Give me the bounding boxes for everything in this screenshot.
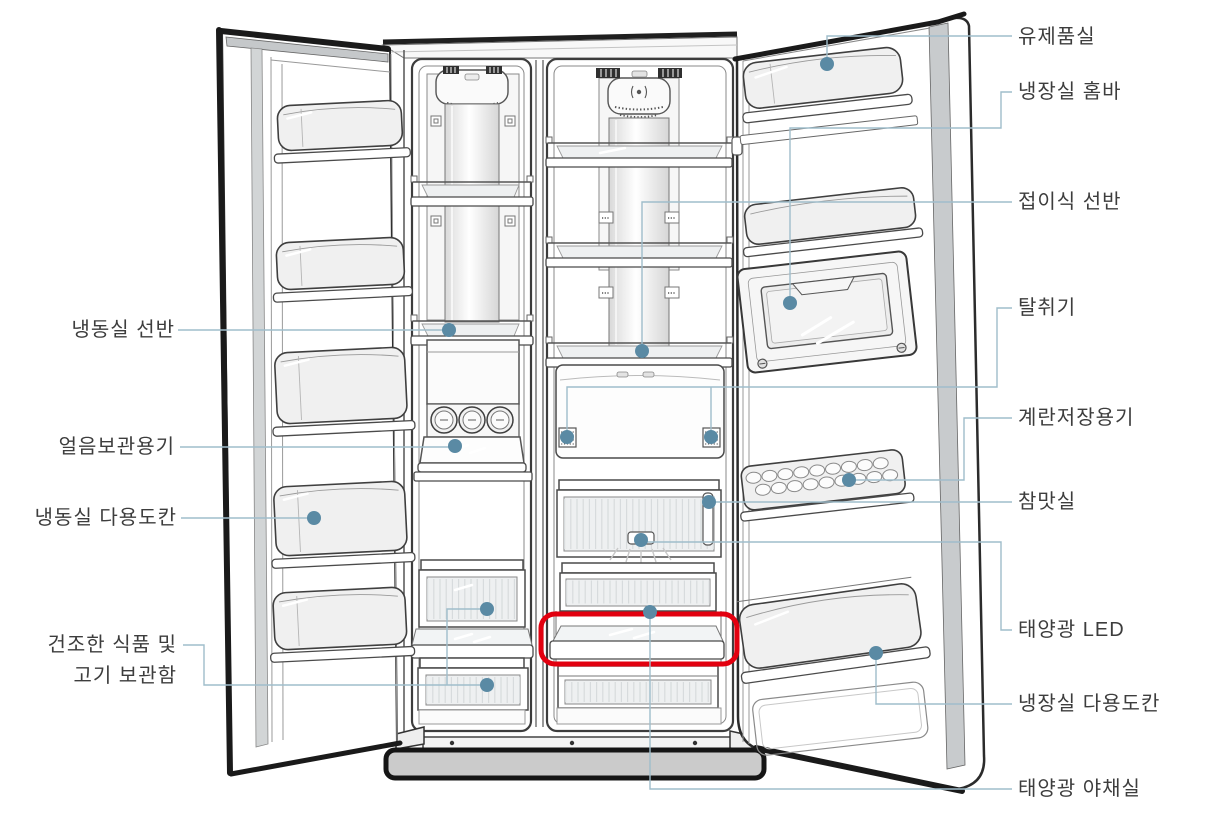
label-fridge-home-bar: 냉장실 홈바 (1018, 80, 1122, 104)
callout-dot-dry-food-upper (480, 602, 494, 616)
fridge-tower (596, 68, 682, 348)
label-deodorizer: 탈취기 (1018, 296, 1076, 320)
freezer-door (219, 30, 415, 775)
callout-dot-dry-food-lower (480, 678, 494, 692)
label-dairy-room: 유제품실 (1018, 25, 1096, 49)
ice-maker-dials (431, 407, 513, 433)
label-folding-shelf: 접이식 선반 (1018, 190, 1122, 214)
label-chammat-room: 참맛실 (1018, 490, 1076, 514)
label-solar-veg-room: 태양광 야채실 (1018, 777, 1141, 801)
callout-dot-freezer-shelf (442, 323, 456, 337)
meat-drawer-lower (418, 658, 528, 710)
callout-dot-solar-veg-room (643, 605, 657, 619)
callout-dot-solar-led (634, 533, 648, 547)
diagram-canvas: 유제품실 냉장실 홈바 접이식 선반 탈취기 계란저장용기 참맛실 태양광 LE… (0, 0, 1230, 824)
callout-dot-freezer-utility-bin (307, 511, 321, 525)
vegetable-drawer (560, 563, 716, 611)
dry-food-drawer-upper (419, 560, 525, 627)
label-dry-food-meat-box: 건조한 식품 및 고기 보관함 (47, 630, 177, 692)
label-dry-food-meat-box-line2: 고기 보관함 (47, 661, 177, 692)
label-dry-food-meat-box-line1: 건조한 식품 및 (47, 630, 177, 661)
cover-panel (556, 365, 724, 458)
label-freezer-shelf: 냉동실 선반 (71, 318, 175, 342)
freezer-mid-shelf (411, 629, 533, 658)
home-bar (737, 251, 918, 374)
callout-dot-egg-container (842, 473, 856, 487)
label-egg-container: 계란저장용기 (1018, 406, 1134, 430)
label-ice-container: 얼음보관용기 (59, 435, 175, 459)
callout-dot-folding-shelf (635, 344, 649, 358)
callout-dot-fridge-home-bar (783, 296, 797, 310)
callout-dot-dairy-room (820, 57, 834, 71)
label-freezer-utility-bin: 냉동실 다용도칸 (35, 506, 177, 530)
freezer-door-bin-1 (272, 100, 411, 164)
base (386, 727, 764, 778)
fridge-compartment (546, 59, 733, 731)
callout-dot-ice-container (448, 439, 462, 453)
callout-dot-chammat-room (702, 495, 716, 509)
callout-dot-deodorizer-left (560, 430, 574, 444)
plinth (386, 750, 764, 778)
chammat-drawer (557, 480, 721, 563)
freezer-compartment (411, 59, 533, 731)
solar-vegetable-drawer (558, 666, 718, 708)
freezer-door-bin-2 (271, 237, 413, 303)
label-solar-led: 태양광 LED (1018, 618, 1125, 642)
callout-dot-fridge-utility-bin (869, 646, 883, 660)
label-fridge-utility-bin: 냉장실 다용도칸 (1018, 692, 1160, 716)
fridge-door (731, 14, 984, 791)
ice-storage-bucket (414, 437, 532, 481)
callout-dot-deodorizer-right (704, 430, 718, 444)
ice-maker (414, 340, 532, 481)
